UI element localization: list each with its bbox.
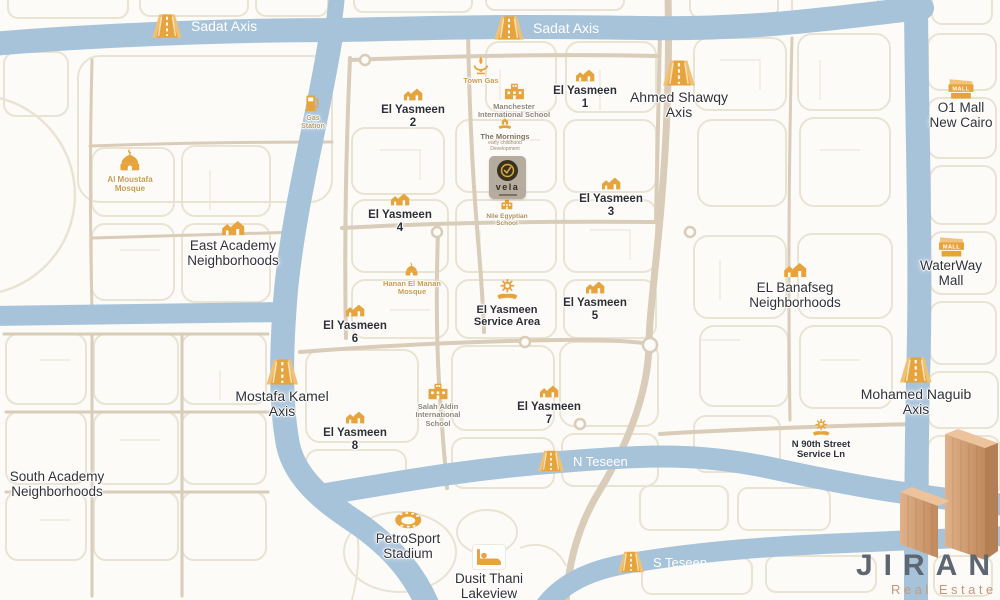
map-canvas: MALL <box>0 0 1000 600</box>
vela-logo-text: vela <box>496 182 520 192</box>
map: MALL <box>0 0 1000 600</box>
jiran-wordmark: JIRAN <box>856 549 1000 583</box>
vela-logo: vela <box>489 156 526 199</box>
vela-logo-subline <box>499 194 517 196</box>
check-icon <box>500 163 515 178</box>
road-sadat-axis <box>0 8 922 44</box>
jiran-building-logo <box>855 420 1000 565</box>
vela-logo-circle <box>497 160 518 181</box>
road-mostafa-kamel <box>282 30 428 600</box>
jiran-tagline: Real Estate <box>891 582 997 597</box>
